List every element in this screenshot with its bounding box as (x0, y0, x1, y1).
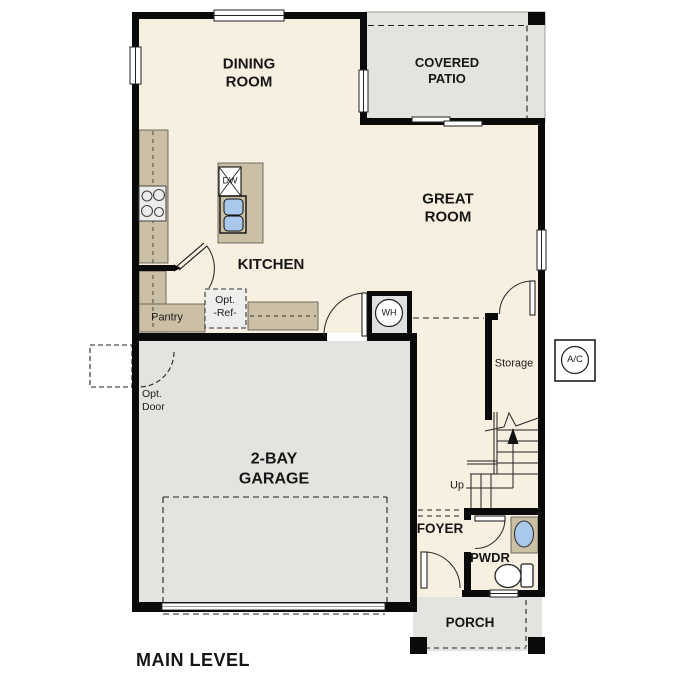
storage-door-leaf (530, 281, 535, 315)
range-stove (139, 186, 166, 221)
opt-door-label: Opt. Door (142, 388, 165, 414)
dining-room-label-line1: DINING (223, 56, 276, 74)
wall-bottom-seg2 (462, 590, 490, 597)
opt-door-label-line1: Opt. (142, 388, 165, 401)
wall-right (538, 118, 545, 597)
wall-storage-top-stub (485, 313, 498, 320)
covered-patio-label: COVERED PATIO (415, 55, 479, 87)
wall-pantry-stub (132, 265, 174, 271)
up-label: Up (450, 479, 464, 492)
wall-pwdr-left-upper (464, 508, 471, 520)
floor-plan-drawing (0, 0, 687, 687)
garage-entry-door-leaf (362, 293, 367, 336)
kitchen-label: KITCHEN (238, 256, 305, 274)
opt-ref-label-line2: -Ref- (213, 307, 236, 320)
wh-closet-wall-top (367, 291, 412, 296)
toilet-tank (521, 564, 533, 587)
front-door-leaf (421, 552, 427, 588)
storage-label: Storage (495, 357, 534, 370)
wall-bottom-seg1 (410, 590, 417, 597)
wall-garage-right (410, 341, 417, 612)
toilet (495, 564, 533, 588)
covered-patio-label-line2: PATIO (415, 71, 479, 87)
pantry-label: Pantry (151, 311, 183, 324)
porch-post-right (528, 637, 545, 654)
pwdr-door-leaf (475, 516, 505, 521)
floor-plan: DINING ROOM COVERED PATIO GREAT ROOM KIT… (0, 0, 687, 687)
opt-ref-label: Opt. -Ref- (213, 294, 236, 320)
foyer-label: FOYER (417, 521, 464, 537)
pwdr-sink (515, 521, 534, 547)
kitchen-sink-basin-top (224, 199, 243, 215)
wall-stair-bottom (464, 508, 545, 515)
wall-kitchen-garage-left (132, 333, 327, 341)
wall-bottom-seg3 (518, 590, 545, 597)
ac-unit-label: A/C (567, 354, 583, 366)
great-room-label: GREAT ROOM (422, 191, 473, 228)
opt-door-label-line2: Door (142, 401, 165, 414)
covered-patio-label-line1: COVERED (415, 55, 479, 71)
opt-ref-label-line1: Opt. (213, 294, 236, 307)
great-room-label-line2: ROOM (422, 209, 473, 227)
garage-door (162, 603, 385, 610)
patio-slider-panel-2 (444, 121, 482, 126)
kitchen-sink-basin-bottom (224, 216, 243, 231)
dishwasher-label: DW (223, 176, 238, 187)
plan-title: MAIN LEVEL (136, 650, 250, 672)
dining-room-label-line2: ROOM (223, 74, 276, 92)
wh-closet-wall-left (367, 291, 372, 333)
garage-label: 2-BAY GARAGE (239, 449, 309, 488)
great-room-label-line1: GREAT (422, 191, 473, 209)
toilet-bowl (495, 565, 521, 588)
wall-storage-left (485, 313, 492, 420)
pwdr-sink-basin (515, 521, 534, 547)
dining-room-label: DINING ROOM (223, 56, 276, 93)
water-heater-label: WH (382, 308, 397, 319)
porch-label: PORCH (446, 615, 495, 631)
garage-label-line2: GARAGE (239, 469, 309, 489)
garage-label-line1: 2-BAY (239, 449, 309, 469)
patio-corner-post (528, 12, 545, 25)
porch-post-left (410, 637, 427, 654)
pwdr-label: PWDR (470, 550, 510, 566)
wh-closet-wall-right (407, 291, 412, 333)
wall-left (132, 12, 139, 612)
opt-door-landing-dashed (90, 345, 132, 387)
wall-kitchen-garage-right (367, 333, 417, 341)
